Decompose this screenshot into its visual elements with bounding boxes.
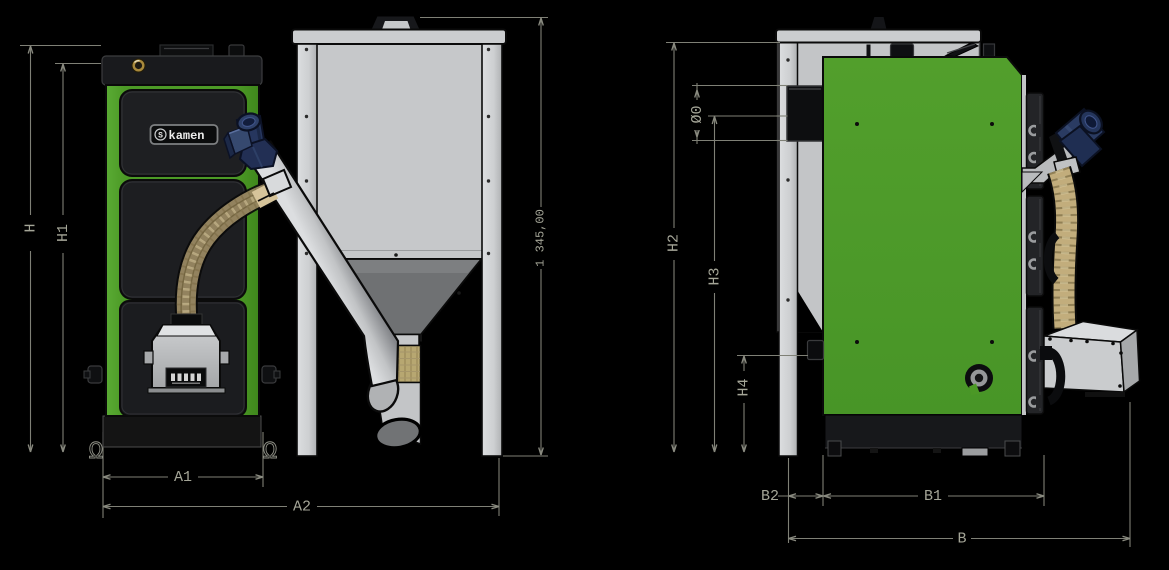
svg-text:B1: B1 xyxy=(924,488,942,505)
svg-text:H2: H2 xyxy=(665,234,682,252)
svg-text:1 345,00: 1 345,00 xyxy=(534,209,548,267)
svg-text:B2: B2 xyxy=(761,488,779,505)
svg-text:Ø0: Ø0 xyxy=(689,105,706,123)
svg-text:S: S xyxy=(158,132,163,141)
svg-text:H: H xyxy=(22,223,39,232)
svg-text:A2: A2 xyxy=(293,498,311,515)
svg-text:kamen: kamen xyxy=(169,129,205,143)
svg-text:H4: H4 xyxy=(735,378,752,396)
svg-text:H3: H3 xyxy=(706,267,723,285)
svg-text:Ω: Ω xyxy=(89,439,103,466)
svg-text:H1: H1 xyxy=(55,224,72,242)
svg-text:B: B xyxy=(957,530,966,547)
svg-text:A1: A1 xyxy=(174,469,192,486)
svg-text:Ω: Ω xyxy=(263,439,277,466)
